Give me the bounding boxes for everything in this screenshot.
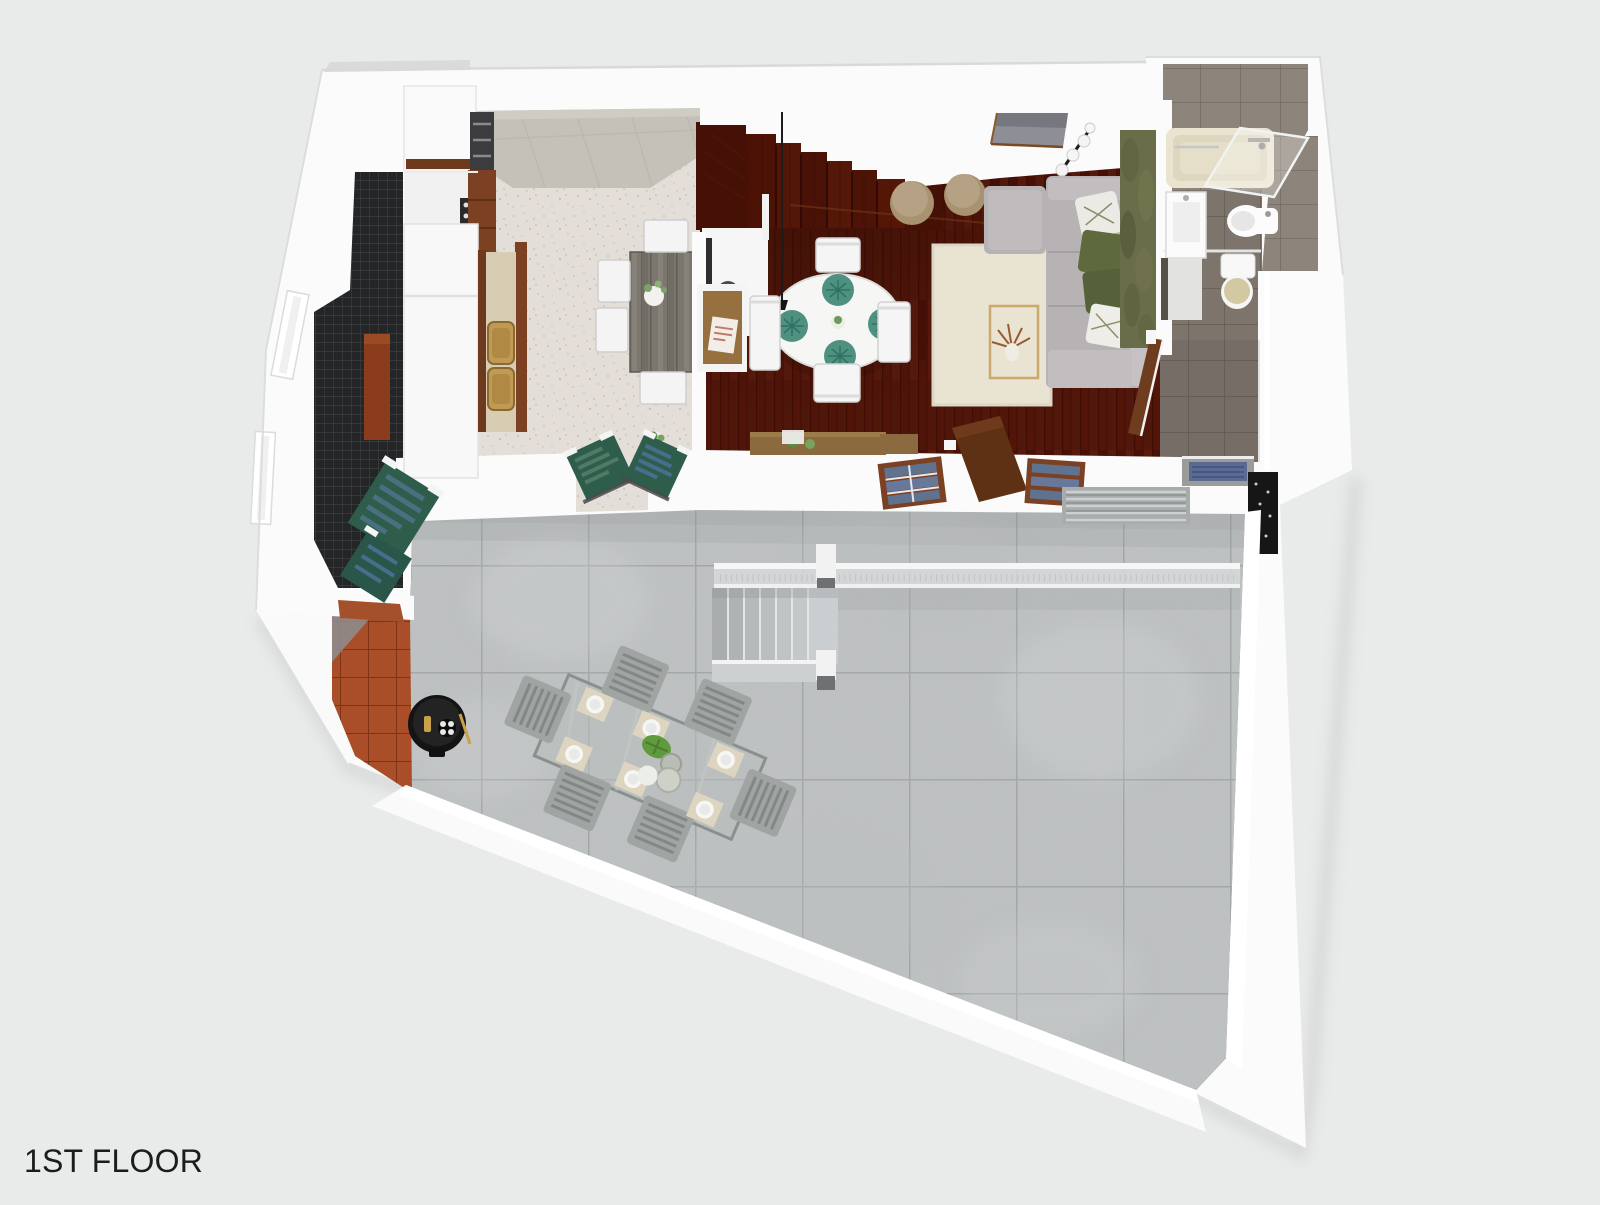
svg-text:1ST FLOOR: 1ST FLOOR (24, 1143, 203, 1179)
